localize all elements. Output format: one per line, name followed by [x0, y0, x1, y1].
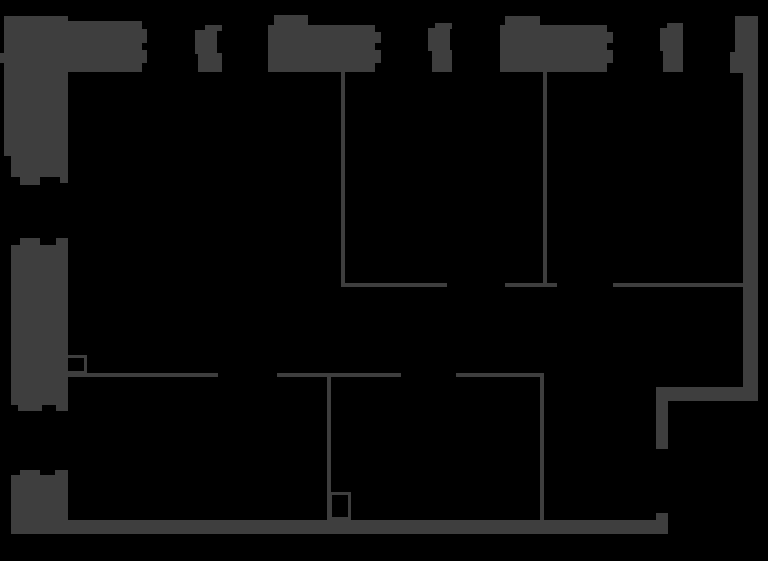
top-block-1-jamb-upper — [375, 32, 381, 43]
partition-vertical-1 — [341, 72, 345, 287]
top-block-2-jamb-upper — [607, 32, 613, 43]
partition-mid-horizontal-c — [613, 283, 745, 287]
partition-vertical-4 — [540, 373, 544, 520]
top-block-1 — [268, 25, 375, 72]
top-right-protrusion — [730, 52, 735, 73]
fixture-box-bottom — [329, 492, 351, 520]
top-block-2 — [500, 25, 607, 72]
top-right-corner — [735, 16, 758, 73]
right-jog-vertical — [656, 387, 668, 449]
top-block-2-tab — [505, 16, 540, 25]
right-jog-horizontal — [656, 387, 757, 401]
window-tooth — [20, 238, 40, 245]
top-band-left-jamb-upper — [142, 29, 147, 43]
top-mullion-1-base — [198, 53, 222, 72]
right-wall — [743, 73, 758, 401]
window-tooth — [20, 177, 40, 185]
top-mullion-3-base — [663, 50, 683, 72]
top-mullion-1-body — [195, 30, 217, 54]
partition-lower-horizontal-c — [456, 373, 544, 377]
bottom-wall — [11, 520, 668, 534]
window-tooth — [55, 470, 68, 475]
window-tooth — [60, 177, 68, 183]
top-mullion-2-base — [432, 50, 452, 72]
top-band-left-jamb-lower — [142, 50, 147, 63]
left-wall-mid — [11, 245, 68, 405]
top-mullion-2-body — [428, 28, 450, 51]
partition-vertical-2 — [543, 72, 547, 287]
left-wall-lower — [11, 475, 68, 534]
left-wall-upper-foot — [11, 156, 68, 177]
left-wall-upper — [4, 16, 68, 156]
top-block-1-tab — [274, 15, 308, 25]
partition-mid-horizontal-b — [505, 283, 557, 287]
fixture-box-left — [62, 355, 87, 374]
window-tooth — [18, 405, 42, 411]
top-mullion-3-body — [660, 28, 683, 51]
floor-plan-canvas — [0, 0, 768, 561]
window-tooth — [20, 470, 40, 475]
partition-mid-horizontal-a — [341, 283, 447, 287]
top-block-1-jamb-lower — [375, 50, 381, 63]
top-block-2-jamb-lower — [607, 50, 613, 63]
window-tooth — [56, 238, 68, 245]
partition-lower-horizontal-b — [277, 373, 401, 377]
window-tooth — [56, 405, 68, 411]
partition-lower-horizontal-a — [68, 373, 218, 377]
